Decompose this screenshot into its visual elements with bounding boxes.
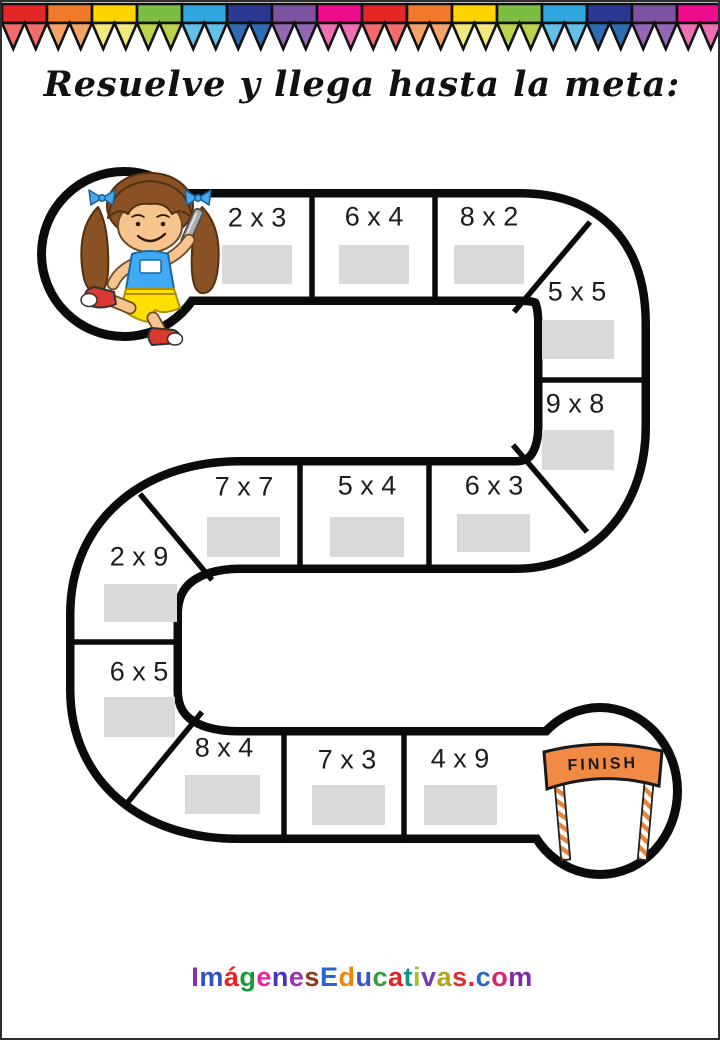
site-watermark: ImágenesEducativas.com — [2, 962, 720, 993]
answer-box-6x3[interactable] — [457, 514, 530, 552]
watermark-letter: t — [404, 962, 414, 992]
answer-box-6x4[interactable] — [339, 245, 409, 284]
watermark-letter: E — [320, 962, 339, 992]
watermark-letter: e — [256, 962, 272, 992]
answer-box-8x2[interactable] — [454, 245, 524, 284]
watermark-letter: c — [372, 962, 388, 992]
problem-label-9x8: 9 x 8 — [546, 389, 605, 420]
problem-label-4x9: 4 x 9 — [431, 744, 490, 775]
answer-box-9x8[interactable] — [542, 430, 614, 470]
answer-box-6x5[interactable] — [104, 697, 175, 737]
finish-label: FINISH — [567, 755, 638, 774]
problem-label-6x4: 6 x 4 — [345, 202, 404, 233]
watermark-letter: m — [508, 962, 533, 992]
problem-label-6x3: 6 x 3 — [465, 471, 524, 502]
watermark-letter: d — [338, 962, 355, 992]
problem-label-7x7: 7 x 7 — [215, 472, 274, 503]
problem-label-8x2: 8 x 2 — [460, 202, 519, 233]
answer-box-7x3[interactable] — [312, 785, 385, 825]
answer-box-8x4[interactable] — [185, 775, 260, 814]
watermark-letter: a — [437, 962, 453, 992]
watermark-letter: m — [199, 962, 224, 992]
answer-box-5x4[interactable] — [330, 517, 404, 557]
problem-label-5x4: 5 x 4 — [338, 471, 397, 502]
worksheet-page: Resuelve y llega hasta la meta: — [0, 0, 720, 1040]
watermark-letter: e — [289, 962, 305, 992]
watermark-letter: á — [224, 962, 240, 992]
answer-box-4x9[interactable] — [424, 785, 497, 825]
answer-box-5x5[interactable] — [542, 320, 614, 359]
watermark-letter: u — [355, 962, 372, 992]
problem-label-2x9: 2 x 9 — [110, 542, 169, 573]
watermark-letter: a — [388, 962, 404, 992]
watermark-letter: . — [468, 962, 476, 992]
answer-box-2x9[interactable] — [104, 584, 177, 622]
problem-label-2x3: 2 x 3 — [228, 203, 287, 234]
problem-label-7x3: 7 x 3 — [318, 745, 377, 776]
watermark-letter: v — [421, 962, 437, 992]
problem-label-5x5: 5 x 5 — [548, 277, 607, 308]
watermark-letter: i — [413, 962, 421, 992]
watermark-letter: g — [239, 962, 256, 992]
watermark-letter: s — [452, 962, 468, 992]
watermark-letter: c — [476, 962, 492, 992]
problem-label-8x4: 8 x 4 — [195, 733, 254, 764]
watermark-letter: s — [304, 962, 320, 992]
problem-label-6x5: 6 x 5 — [110, 657, 169, 688]
watermark-letter: n — [272, 962, 289, 992]
watermark-letter: o — [491, 962, 508, 992]
answer-box-7x7[interactable] — [207, 517, 280, 557]
sneaker-right — [149, 328, 183, 345]
answer-box-2x3[interactable] — [222, 245, 292, 284]
